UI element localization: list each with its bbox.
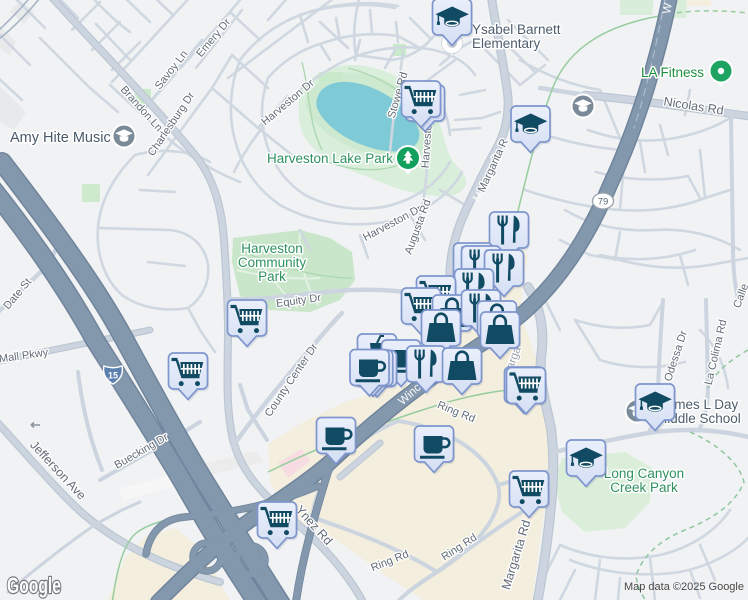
svg-text:Community: Community [238, 255, 307, 270]
svg-text:Amy Hite Music: Amy Hite Music [10, 130, 111, 146]
svg-text:W: W [661, 2, 675, 15]
svg-text:LA Fitness: LA Fitness [641, 65, 704, 80]
svg-text:Google: Google [7, 573, 61, 598]
svg-text:Harveston Lake Park: Harveston Lake Park [267, 151, 393, 166]
svg-text:Ysabel Barnett: Ysabel Barnett [472, 22, 561, 37]
svg-text:Harveston: Harveston [241, 241, 303, 256]
svg-text:Long Canyon: Long Canyon [604, 466, 684, 481]
svg-text:15: 15 [108, 371, 118, 381]
svg-text:Park: Park [258, 269, 286, 284]
svg-text:Map data ©2025 Google: Map data ©2025 Google [624, 581, 744, 593]
svg-text:Creek Park: Creek Park [610, 480, 678, 495]
svg-text:79: 79 [598, 197, 609, 208]
svg-text:Elementary: Elementary [472, 36, 541, 51]
